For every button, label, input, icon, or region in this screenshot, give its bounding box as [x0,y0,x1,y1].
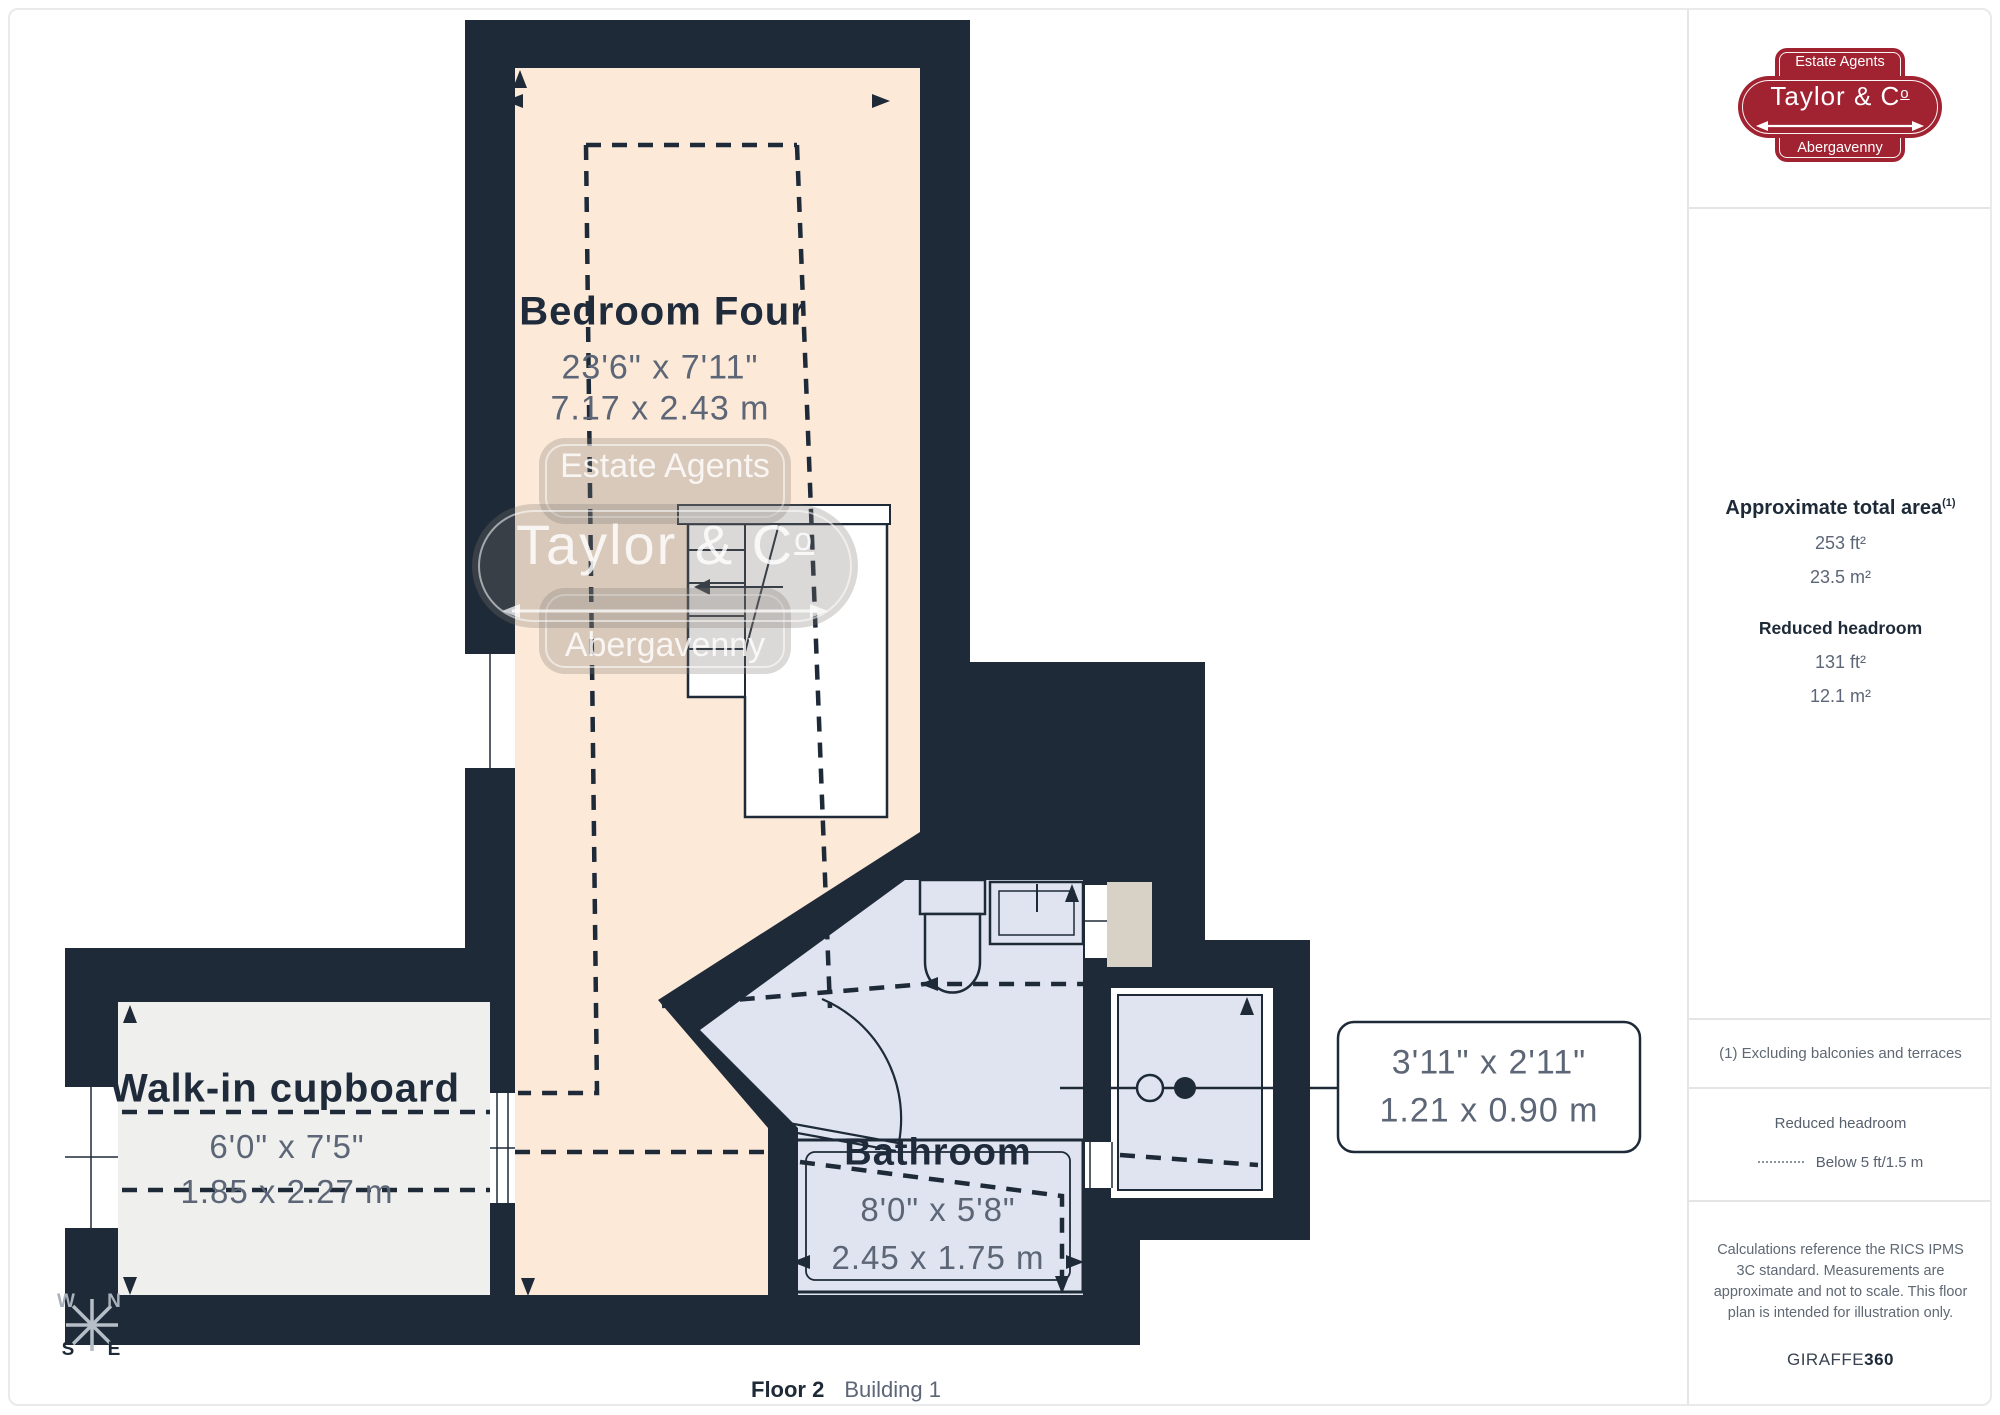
page-border [8,8,1992,1406]
floorplan-page: Estate Agents Taylor & Co Abergavenny Be… [0,0,2000,1415]
logo-name: Taylor & Co [1738,81,1942,112]
logo-badge: Taylor & Co [1738,76,1942,138]
logo-arrow-icon [1755,120,1925,132]
